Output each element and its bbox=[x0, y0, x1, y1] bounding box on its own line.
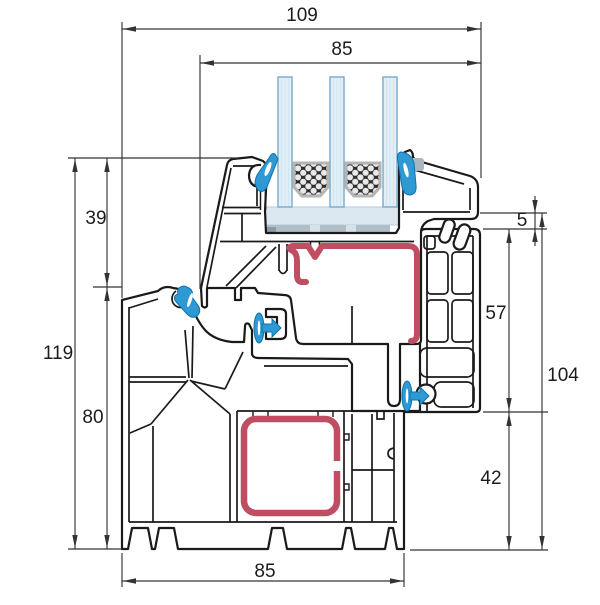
svg-text:80: 80 bbox=[82, 407, 103, 428]
svg-text:104: 104 bbox=[547, 365, 579, 386]
svg-text:119: 119 bbox=[43, 343, 73, 364]
svg-text:42: 42 bbox=[480, 468, 501, 489]
svg-text:5: 5 bbox=[517, 210, 528, 231]
svg-text:39: 39 bbox=[85, 208, 106, 229]
svg-text:85: 85 bbox=[331, 39, 352, 60]
svg-text:57: 57 bbox=[485, 303, 506, 324]
svg-text:85: 85 bbox=[254, 561, 275, 582]
svg-text:109: 109 bbox=[286, 5, 318, 26]
